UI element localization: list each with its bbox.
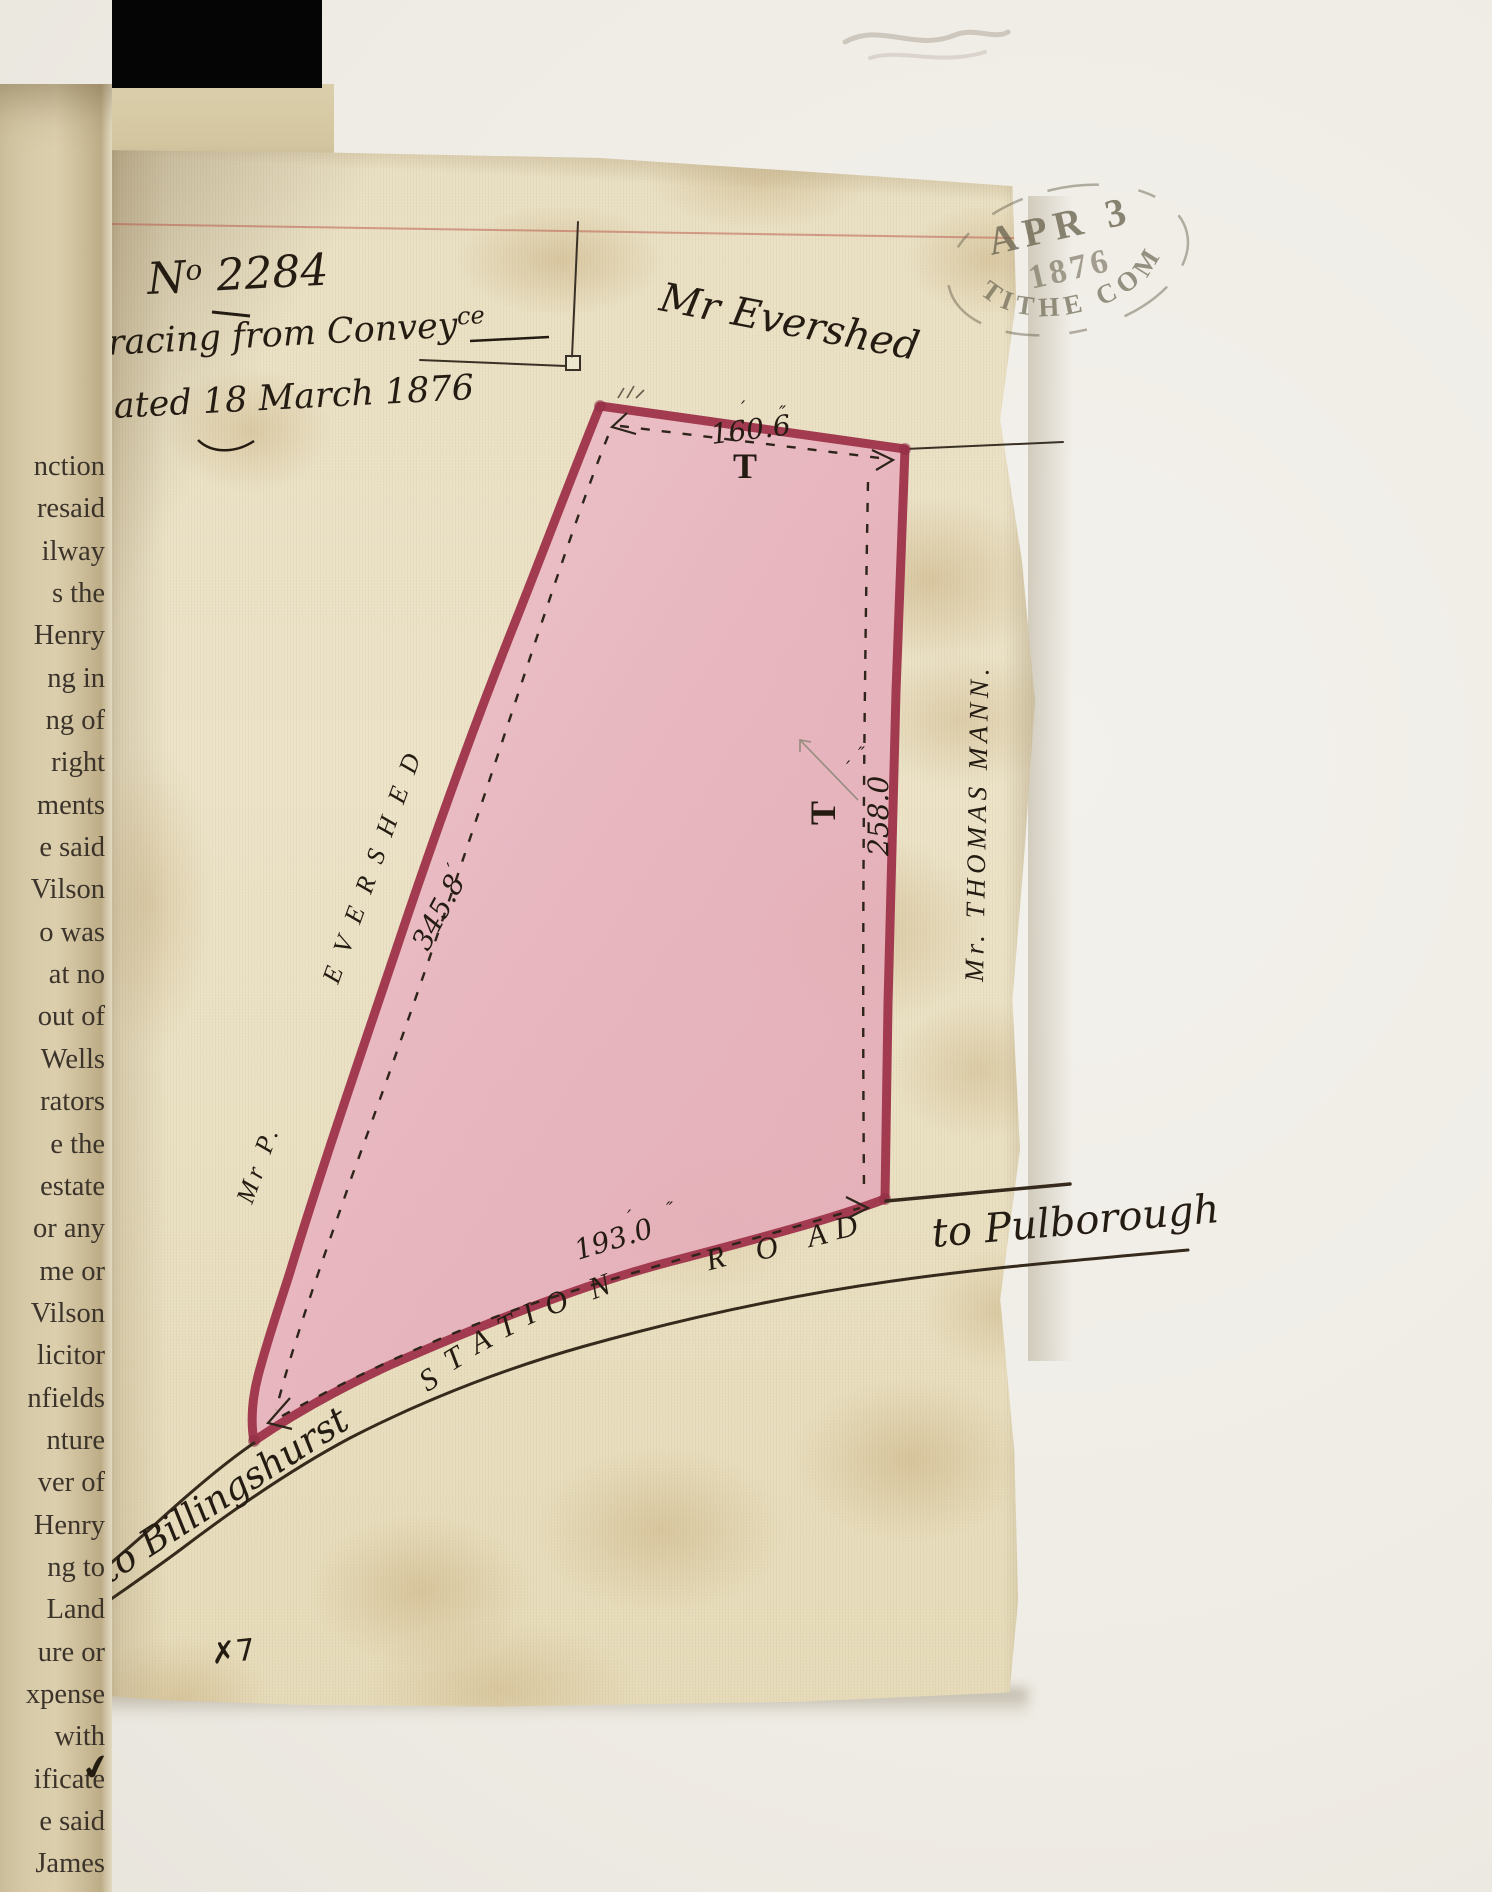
- book-page-line: ure or: [0, 1632, 112, 1674]
- red-margin-line: [108, 224, 1014, 238]
- ref-number-label: No 2284: [145, 245, 330, 305]
- destination-pulborough: to Pulborough: [930, 1186, 1221, 1257]
- prime-mark: ′: [741, 397, 746, 419]
- t-mark-top: T: [733, 446, 757, 486]
- book-page-line: Vilson: [0, 869, 112, 911]
- owner-label-left-prefix: Mr P.: [230, 1120, 286, 1208]
- destination-billingshurst: to Billingshurst: [90, 1398, 356, 1592]
- book-page-line: e the: [0, 1124, 112, 1166]
- scanned-document-page: { "book_page": { "lines": ["nction","res…: [0, 0, 1492, 1892]
- book-page-line: ver of: [0, 1462, 112, 1504]
- dimension-right: 258.0: [862, 776, 895, 857]
- owner-label-top: Mr Evershed: [655, 274, 923, 370]
- book-page-line: James: [0, 1843, 112, 1885]
- double-prime-mark: ″: [779, 402, 786, 424]
- book-page-line: e said: [0, 827, 112, 869]
- book-page-line: or any: [0, 1208, 112, 1250]
- book-page-line: nfields: [0, 1378, 112, 1420]
- title-flourish: [198, 440, 254, 450]
- book-page-line: Wells: [0, 1039, 112, 1081]
- book-page-line: out of: [0, 996, 112, 1038]
- book-page-line: estate: [0, 1166, 112, 1208]
- book-page-line: ments: [0, 785, 112, 827]
- book-page-line: o was: [0, 912, 112, 954]
- prime-mark: ′: [627, 1206, 632, 1228]
- tuft-mark: [618, 386, 644, 398]
- owner-label-right: Mr. THOMAS MANN.: [959, 663, 995, 983]
- double-prime-mark: ″: [858, 743, 865, 765]
- tracing-title-line1: Tracing from Conveyce: [83, 301, 486, 365]
- show-through-marks: [845, 32, 1008, 58]
- book-page-line: Vilson: [0, 1293, 112, 1335]
- book-page-line: nction: [0, 446, 112, 488]
- book-page-line: right: [0, 742, 112, 784]
- book-page-line: ng in: [0, 658, 112, 700]
- tithe-commission-stamp: APR 3 1876 TITHE COM: [933, 162, 1203, 357]
- road-letter: S: [412, 1360, 444, 1398]
- book-page-line: ng to: [0, 1547, 112, 1589]
- surveyor-mark: ✗7: [209, 1633, 257, 1672]
- book-page-line: licitor: [0, 1335, 112, 1377]
- book-page-line: me or: [0, 1251, 112, 1293]
- book-page-line: at no: [0, 954, 112, 996]
- book-page-line: e said: [0, 1801, 112, 1843]
- book-page-line: Henry: [0, 615, 112, 657]
- book-page-line: s the: [0, 573, 112, 615]
- book-page-line: nture: [0, 1420, 112, 1462]
- book-page-line: Henry: [0, 1505, 112, 1547]
- book-page-line: Land: [0, 1589, 112, 1631]
- tracing-title-line2: dated 18 March 1876: [90, 368, 475, 428]
- book-page-column: nction resaid ilway s the Henry ng in ng…: [0, 84, 112, 1892]
- book-page-line: rators: [0, 1081, 112, 1123]
- road-letter: T: [437, 1337, 472, 1377]
- double-prime-mark: ″: [666, 1198, 673, 1220]
- book-page-line: ilway: [0, 531, 112, 573]
- title-dash: [470, 337, 549, 341]
- ref-underline: [212, 312, 250, 316]
- corner-post-marker: [566, 356, 580, 370]
- t-mark-right: T: [803, 801, 843, 825]
- book-page-line: xpense: [0, 1674, 112, 1716]
- prime-mark: ′: [846, 757, 851, 779]
- book-page-line: resaid: [0, 488, 112, 530]
- map-drawing: No 2284 Tracing from Conveyce dated 18 M…: [0, 0, 1492, 1892]
- book-page-line: ng of: [0, 700, 112, 742]
- book-page-text: nction resaid ilway s the Henry ng in ng…: [0, 446, 112, 1886]
